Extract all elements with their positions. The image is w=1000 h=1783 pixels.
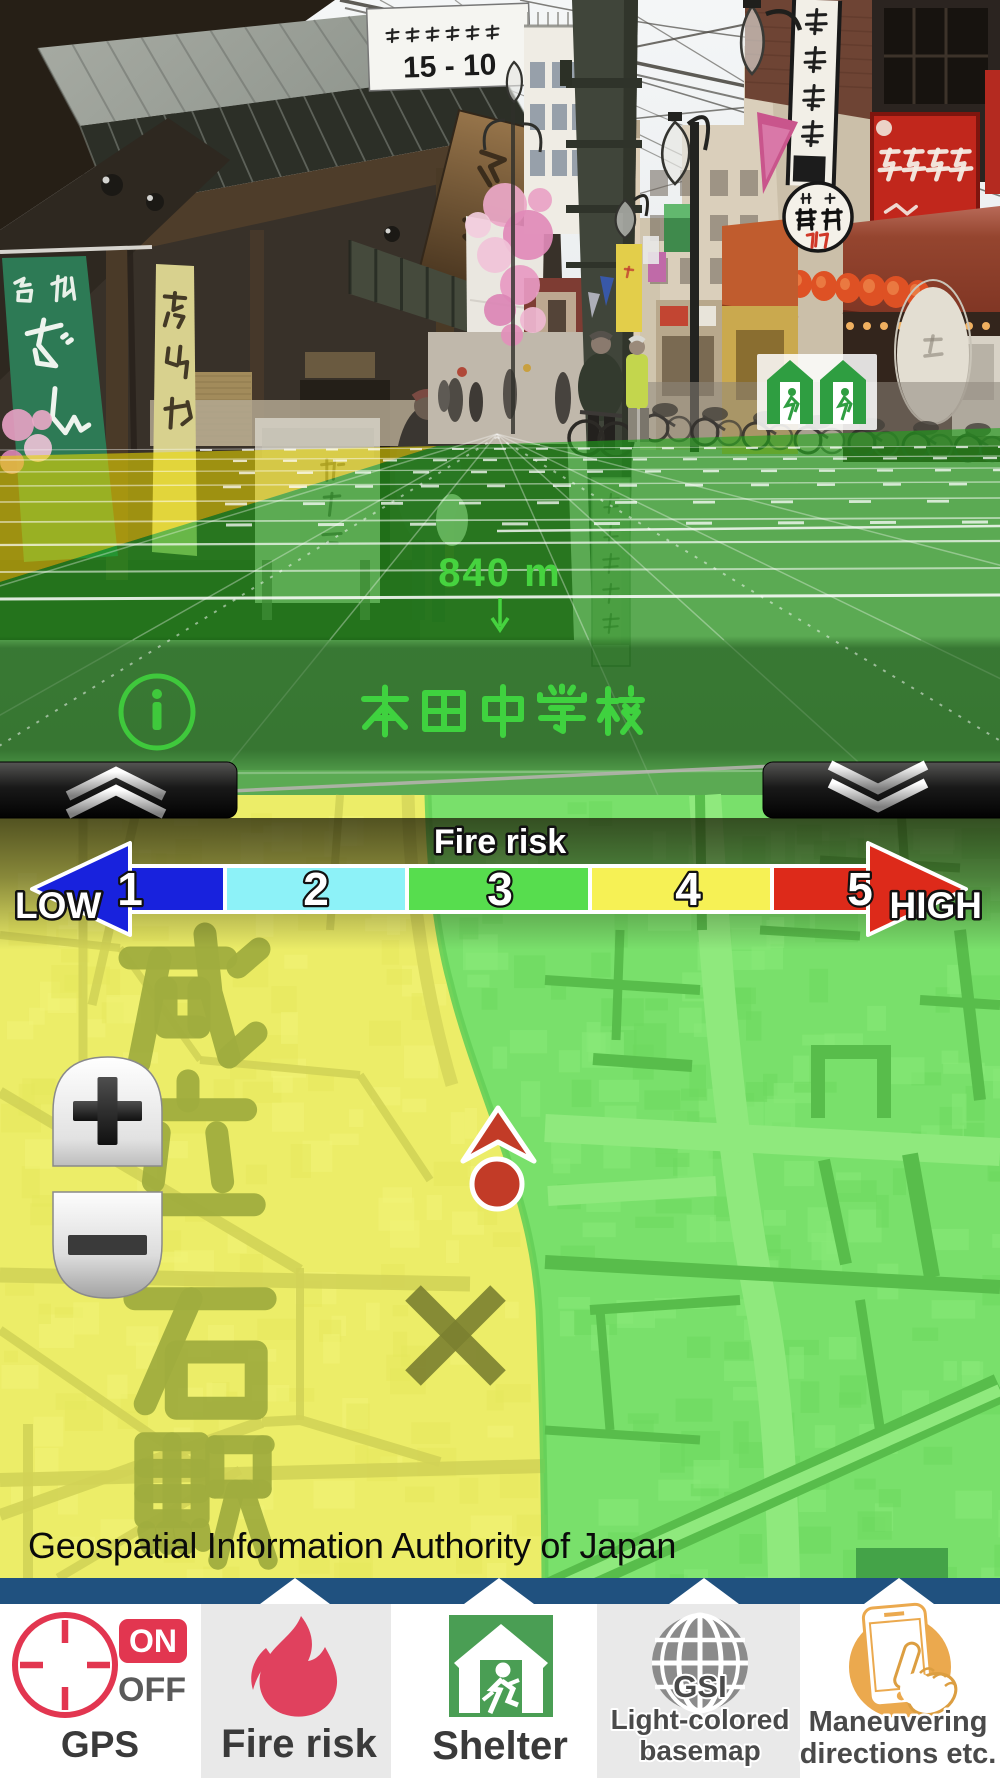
svg-text:1: 1 — [117, 863, 143, 915]
svg-text:Maneuvering: Maneuvering — [809, 1706, 988, 1738]
svg-text:directions etc.: directions etc. — [800, 1738, 997, 1770]
svg-text:5: 5 — [847, 863, 873, 915]
svg-text:840 m: 840 m — [438, 551, 561, 595]
svg-text:GPS: GPS — [61, 1724, 139, 1765]
svg-text:Geospatial Information Authori: Geospatial Information Authority of Japa… — [28, 1525, 676, 1566]
svg-text:GSI: GSI — [673, 1669, 726, 1704]
svg-text:4: 4 — [675, 863, 701, 915]
svg-text:ON: ON — [129, 1623, 177, 1659]
svg-text:Fire risk: Fire risk — [434, 823, 566, 861]
svg-text:basemap: basemap — [639, 1735, 760, 1766]
svg-text:Fire risk: Fire risk — [221, 1722, 377, 1766]
svg-text:Light-colored: Light-colored — [611, 1704, 790, 1735]
svg-text:3: 3 — [487, 863, 513, 915]
svg-text:15 - 10: 15 - 10 — [402, 48, 497, 84]
svg-text:HIGH: HIGH — [890, 885, 983, 926]
svg-text:Shelter: Shelter — [432, 1724, 568, 1768]
svg-text:2: 2 — [303, 863, 329, 915]
svg-text:OFF: OFF — [118, 1671, 186, 1709]
svg-text:LOW: LOW — [15, 885, 101, 926]
